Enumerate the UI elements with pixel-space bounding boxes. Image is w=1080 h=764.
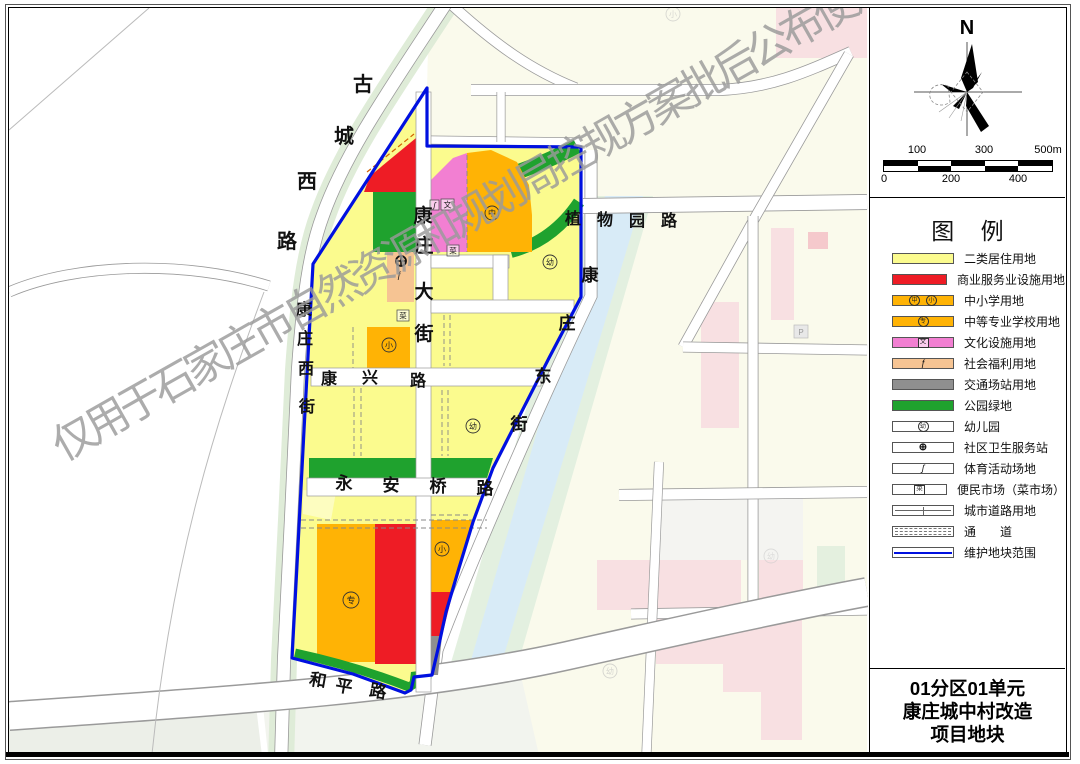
scale-tick-100: 100 <box>908 144 926 156</box>
legend-title: 图 例 <box>870 198 1065 248</box>
svg-text:幼: 幼 <box>546 257 554 267</box>
scale-tick-400: 400 <box>1009 173 1027 185</box>
legend-item-vocational: 专 中等专业学校用地 <box>892 311 1065 332</box>
svg-text:西: 西 <box>298 360 314 378</box>
boundary-swatch <box>892 547 954 558</box>
parking-icon: P <box>798 328 803 337</box>
legend-item-market: 菜 便民市场（菜市场） <box>892 479 1065 500</box>
legend-item-urban-road: 城市道路用地 <box>892 500 1065 521</box>
map-area: 文 ʃ 菜 菜 P 中 小 幼 幼 专 小 ƒ 小 幼 幼 古 <box>9 8 868 752</box>
passage-swatch <box>892 526 954 537</box>
plan-sheet: 文 ʃ 菜 菜 P 中 小 幼 幼 专 小 ƒ 小 幼 幼 古 <box>0 0 1080 764</box>
svg-text:路: 路 <box>661 211 678 230</box>
bg-parcel-pink-4 <box>597 560 741 610</box>
svg-text:小: 小 <box>669 10 677 19</box>
road-label-kangzhuang-dongjie: 康 <box>582 265 600 285</box>
scale-bar <box>883 160 1053 172</box>
legend-item-welfare: ƒ 社会福利用地 <box>892 353 1065 374</box>
legend-item-kindergarten: 幼 幼儿园 <box>892 416 1065 437</box>
primary-school-icon: 小 <box>926 295 937 306</box>
legend-item-residential: 二类居住用地 <box>892 248 1065 269</box>
bg-parcel-pink-3 <box>701 302 739 428</box>
svg-text:安: 安 <box>383 475 400 495</box>
svg-text:东: 东 <box>535 366 552 386</box>
svg-text:街: 街 <box>510 414 528 434</box>
svg-text:西: 西 <box>297 171 317 193</box>
title-line-2: 康庄城中村改造 <box>870 700 1065 723</box>
scale-tick-500: 500m <box>1034 144 1062 156</box>
svg-text:专: 专 <box>346 595 355 606</box>
svg-text:城: 城 <box>334 124 354 148</box>
svg-text:幼: 幼 <box>469 421 477 431</box>
title-line-1: 01分区01单元 <box>870 677 1065 700</box>
sports-icon: ʃ <box>922 464 925 473</box>
north-label: N <box>960 17 974 39</box>
scale-tick-200: 200 <box>942 173 960 185</box>
svg-text:桥: 桥 <box>430 477 448 496</box>
legend-item-commercial: 商业服务业设施用地 <box>892 269 1065 290</box>
title-line-3: 项目地块 <box>870 723 1065 746</box>
road-label-gucheng-xilu: 古 <box>353 72 373 96</box>
legend-item-passage: 通 道 <box>892 521 1065 542</box>
svg-text:路: 路 <box>477 478 495 498</box>
map-canvas: 文 ʃ 菜 菜 P 中 小 幼 幼 专 小 ƒ 小 幼 幼 古 <box>9 8 868 752</box>
legend-item-schools: 中小 中小学用地 <box>892 290 1065 311</box>
title-block: 01分区01单元 康庄城中村改造 项目地块 <box>870 669 1065 749</box>
welfare-icon: ƒ <box>920 359 925 368</box>
urban-road-swatch <box>892 505 954 516</box>
box-market-icon-2: 菜 <box>399 311 407 321</box>
health-station-icon: ⊕ <box>919 443 927 453</box>
road-label-yonganqiao-lu: 永 <box>335 473 353 493</box>
legend-item-health-station: ⊕ 社区卫生服务站 <box>892 437 1065 458</box>
market-icon: 菜 <box>914 485 925 495</box>
scale-tick-300: 300 <box>975 144 993 156</box>
bg-parcel-pink-2 <box>808 232 828 249</box>
middle-school-icon: 中 <box>909 295 920 306</box>
road-label-kangxing-lu: 康 <box>321 369 338 388</box>
bg-parcel-pink-1 <box>771 228 794 320</box>
svg-text:园: 园 <box>629 212 645 230</box>
legend-section: 图 例 二类居住用地 商业服务业设施用地 中小 中小学用地 专 中等专业学校用地… <box>870 198 1065 669</box>
svg-text:街: 街 <box>413 322 433 345</box>
road-label-zhiwuyuan-lu: 植 <box>564 209 581 228</box>
svg-text:路: 路 <box>277 229 298 253</box>
legend-item-boundary: 维护地块范围 <box>892 542 1065 563</box>
svg-text:物: 物 <box>597 210 613 229</box>
parcel-vocational-school <box>317 524 375 662</box>
north-arrow: N <box>870 8 1065 140</box>
bg-parcel-gray <box>653 490 803 560</box>
legend-item-cultural: 文 文化设施用地 <box>892 332 1065 353</box>
svg-text:幼: 幼 <box>767 551 775 561</box>
svg-text:小: 小 <box>438 545 446 554</box>
parcel-commercial-s <box>375 524 416 664</box>
compass-petals <box>941 44 989 132</box>
svg-text:大: 大 <box>414 280 433 303</box>
bottom-bar <box>6 752 1069 757</box>
culture-icon: 文 <box>918 338 929 348</box>
road-label-heping-lu: 和 <box>308 670 328 692</box>
svg-text:幼: 幼 <box>606 666 614 676</box>
svg-text:庄: 庄 <box>559 313 576 333</box>
legend-item-park: 公园绿地 <box>892 395 1065 416</box>
svg-text:平: 平 <box>334 676 354 698</box>
legend-item-transport: 交通场站用地 <box>892 374 1065 395</box>
svg-text:街: 街 <box>298 397 315 416</box>
legend-item-sports: ʃ 体育活动场地 <box>892 458 1065 479</box>
bg-parcel-notch-1 <box>656 664 723 740</box>
svg-text:小: 小 <box>385 341 393 350</box>
compass-section: N 100 300 500m <box>870 8 1065 198</box>
scale-tick-0: 0 <box>881 173 887 185</box>
kindergarten-icon: 幼 <box>918 421 929 432</box>
vocational-icon: 专 <box>918 316 929 327</box>
svg-text:路: 路 <box>410 371 427 390</box>
bg-parcel-notch-2 <box>723 692 761 740</box>
svg-text:兴: 兴 <box>362 369 378 387</box>
side-panel: N 100 300 500m <box>869 8 1065 752</box>
